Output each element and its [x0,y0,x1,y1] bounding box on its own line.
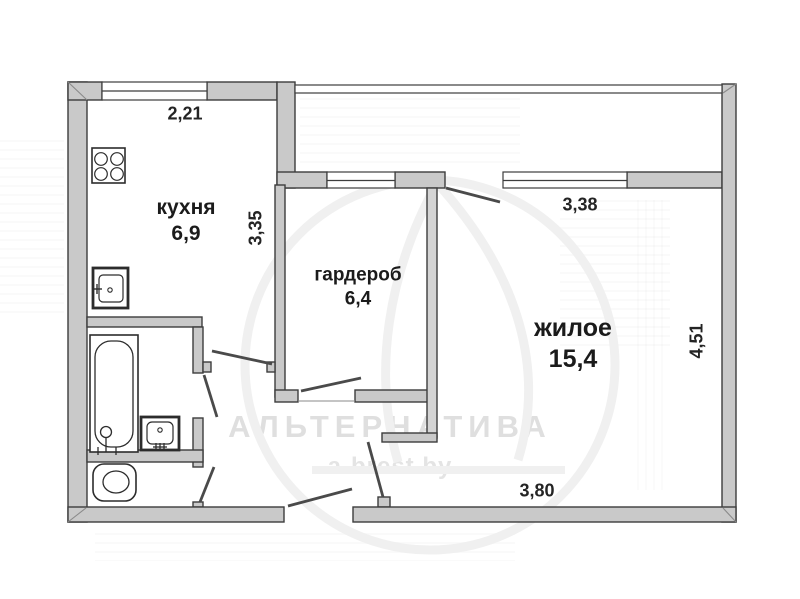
wall-kitchen-door-jamb-l [203,362,211,372]
wardrobe-door-leaf [301,378,361,391]
dimension-living-side: 4,51 [687,323,708,358]
washbasin-icon [141,417,179,450]
stove-icon [92,148,125,183]
wall-divider [427,188,437,438]
room-label-kitchen: кухня 6,9 [156,195,215,248]
toilet-icon [93,464,136,501]
wall-bathroom-top [87,317,202,327]
wall-north-pier [395,172,445,188]
wall-bottom-right [353,507,736,522]
room-area-wardrobe: 6,4 [314,287,401,311]
wall-living-door-jamb [378,497,390,507]
toilet-door-leaf [200,467,214,502]
wall-top-b [207,82,277,100]
room-label-wardrobe: гардероб 6,4 [314,263,401,311]
room-area-kitchen: 6,9 [156,221,215,247]
wall-stub [382,433,437,442]
room-name-living: жилое [534,313,612,344]
wall-wardrobe-bottom [355,390,436,402]
walls [68,82,736,522]
sink-icon [93,268,128,308]
room-area-living: 15,4 [534,344,612,375]
wall-right [722,84,736,522]
room-name-wardrobe: гардероб [314,263,401,287]
dimension-kitchen-top: 2,21 [167,104,202,125]
dimension-living-top: 3,38 [562,195,597,216]
bathtub-icon [90,335,138,455]
wall-left [68,82,87,522]
balcony-parapet [295,85,722,93]
dimension-kitchen-side: 3,35 [246,210,267,245]
wall-top-a [68,82,102,100]
wall-wardrobe-left [275,185,285,397]
room-label-living: жилое 15,4 [534,313,612,376]
room-name-kitchen: кухня [156,195,215,221]
wall-bathroom-right-1 [193,327,203,373]
wall-toilet-jamb [193,502,203,507]
wall-wardrobe-foot [275,390,298,402]
floor-plan: АЛЬТЕРНАТИВА a-brest.by [0,0,800,599]
bathroom-door-leaf [204,375,217,417]
wall-north-right [627,172,722,188]
dimension-living-bottom: 3,80 [519,481,554,502]
wall-bottom-left [68,507,284,522]
